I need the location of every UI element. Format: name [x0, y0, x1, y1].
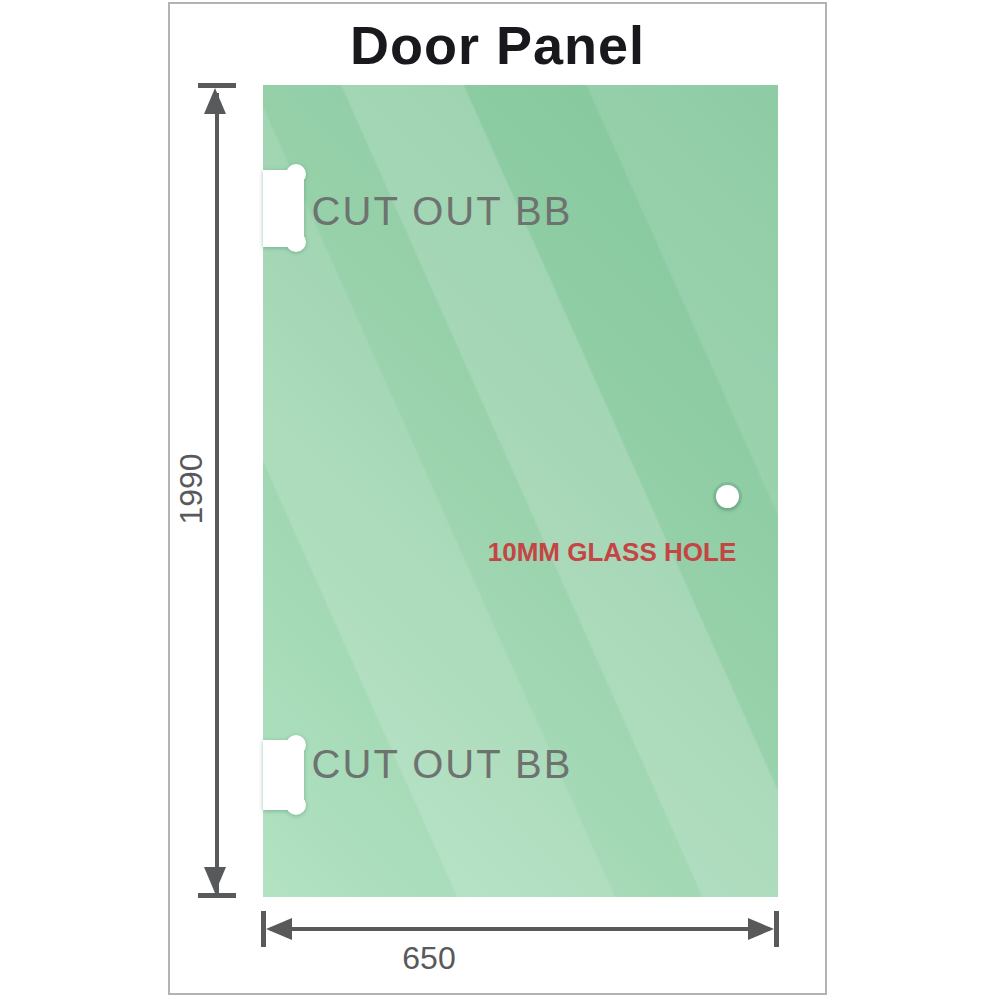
dimension-line-horizontal [270, 927, 770, 931]
page-title: Door Panel [168, 14, 827, 76]
arrow-right-icon [748, 918, 774, 940]
cutout-corner-circle-top [286, 735, 306, 755]
arrow-up-icon [204, 88, 226, 114]
dimension-line-vertical [215, 93, 219, 893]
width-dimension-label: 650 [402, 940, 455, 977]
cutout-corner-circle-bottom [286, 795, 306, 815]
hinge-cutout-bottom [263, 735, 317, 815]
diagram-canvas: Door Panel CUT OUT BB CUT OUT BB 10MM GL… [0, 0, 1000, 1000]
cutout-corner-circle-bottom [286, 232, 306, 252]
arrow-down-icon [204, 867, 226, 893]
cutout-top-label: CUT OUT BB [312, 189, 573, 234]
arrow-left-icon [266, 918, 292, 940]
cutout-bottom-label: CUT OUT BB [312, 742, 573, 787]
dimension-cap-bottom [198, 893, 236, 898]
dimension-tick-right [774, 911, 779, 947]
glass-hole [716, 485, 739, 508]
glass-hole-label: 10MM GLASS HOLE [488, 537, 736, 568]
hinge-cutout-top [263, 164, 317, 252]
height-dimension-label: 1990 [173, 453, 210, 524]
cutout-corner-circle-top [286, 164, 306, 184]
